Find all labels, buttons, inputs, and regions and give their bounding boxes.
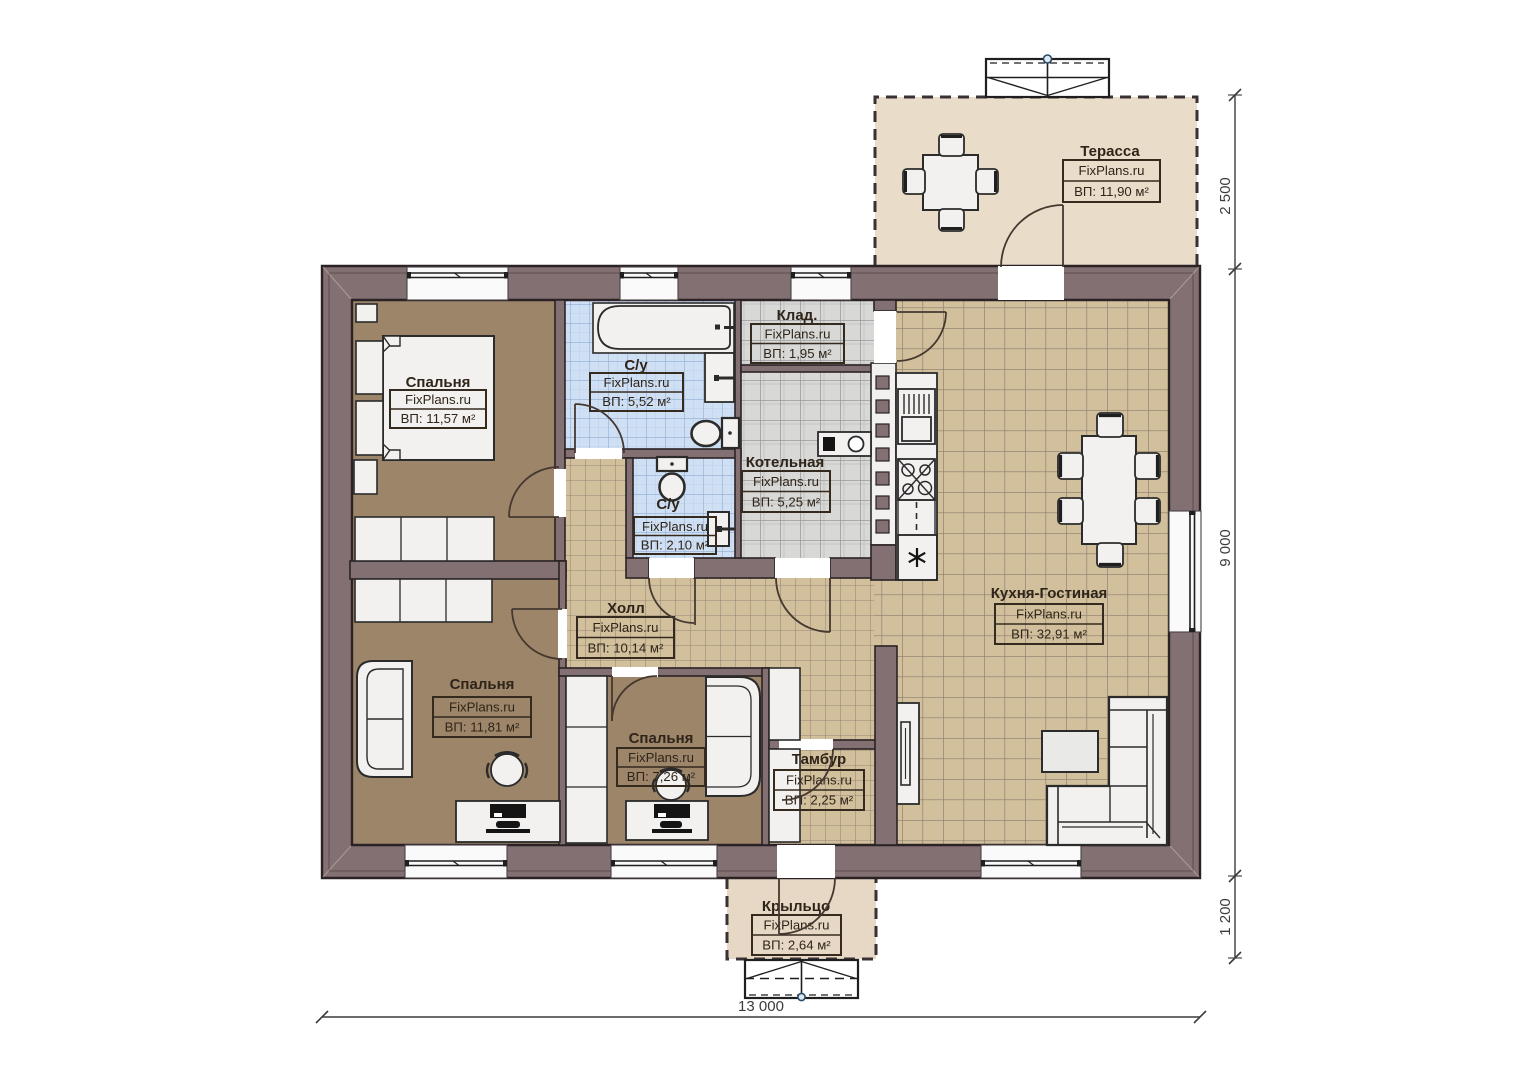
svg-text:ВП: 5,25 м²: ВП: 5,25 м² bbox=[752, 494, 821, 509]
svg-text:ВП: 5,52 м²: ВП: 5,52 м² bbox=[602, 394, 671, 409]
svg-text:Спальня: Спальня bbox=[406, 374, 471, 391]
svg-text:Терасса: Терасса bbox=[1080, 143, 1140, 160]
svg-text:ВП: 7,26 м²: ВП: 7,26 м² bbox=[627, 769, 696, 784]
svg-text:Котельная: Котельная bbox=[746, 454, 825, 471]
svg-text:Холл: Холл bbox=[607, 600, 645, 617]
svg-text:FixPlans.ru: FixPlans.ru bbox=[1016, 607, 1082, 622]
svg-text:13 000: 13 000 bbox=[738, 998, 784, 1015]
svg-text:ВП: 2,64 м²: ВП: 2,64 м² bbox=[762, 938, 831, 953]
svg-text:ВП: 11,90 м²: ВП: 11,90 м² bbox=[1074, 184, 1149, 199]
svg-text:ВП: 11,81 м²: ВП: 11,81 м² bbox=[445, 720, 520, 735]
svg-text:ВП: 1,95 м²: ВП: 1,95 м² bbox=[763, 346, 832, 361]
svg-text:ВП: 32,91 м²: ВП: 32,91 м² bbox=[1011, 627, 1087, 642]
svg-text:9 000: 9 000 bbox=[1217, 529, 1234, 567]
svg-text:FixPlans.ru: FixPlans.ru bbox=[642, 519, 708, 534]
svg-text:FixPlans.ru: FixPlans.ru bbox=[753, 474, 819, 489]
svg-text:Тамбур: Тамбур bbox=[792, 751, 846, 768]
svg-text:FixPlans.ru: FixPlans.ru bbox=[449, 700, 515, 715]
svg-text:Крыльцо: Крыльцо bbox=[762, 898, 830, 915]
svg-text:ВП: 2,25 м²: ВП: 2,25 м² bbox=[785, 793, 854, 808]
svg-text:Спальня: Спальня bbox=[629, 730, 694, 747]
svg-text:ВП: 2,10 м²: ВП: 2,10 м² bbox=[641, 537, 710, 552]
svg-text:FixPlans.ru: FixPlans.ru bbox=[604, 375, 670, 390]
svg-text:С/у: С/у bbox=[624, 357, 648, 374]
svg-text:FixPlans.ru: FixPlans.ru bbox=[405, 392, 471, 407]
svg-text:FixPlans.ru: FixPlans.ru bbox=[1079, 163, 1145, 178]
svg-text:Клад.: Клад. bbox=[777, 307, 818, 324]
svg-text:Спальня: Спальня bbox=[450, 676, 515, 693]
svg-text:FixPlans.ru: FixPlans.ru bbox=[765, 326, 831, 341]
svg-text:FixPlans.ru: FixPlans.ru bbox=[593, 620, 659, 635]
svg-text:Кухня-Гостиная: Кухня-Гостиная bbox=[991, 585, 1108, 602]
svg-text:ВП: 10,14 м²: ВП: 10,14 м² bbox=[588, 640, 664, 655]
svg-text:С/у: С/у bbox=[656, 496, 680, 513]
svg-text:1 200: 1 200 bbox=[1217, 898, 1234, 936]
svg-text:FixPlans.ru: FixPlans.ru bbox=[786, 773, 852, 788]
svg-text:FixPlans.ru: FixPlans.ru bbox=[628, 750, 694, 765]
svg-text:ВП: 11,57 м²: ВП: 11,57 м² bbox=[401, 411, 476, 426]
svg-text:2 500: 2 500 bbox=[1217, 177, 1234, 215]
